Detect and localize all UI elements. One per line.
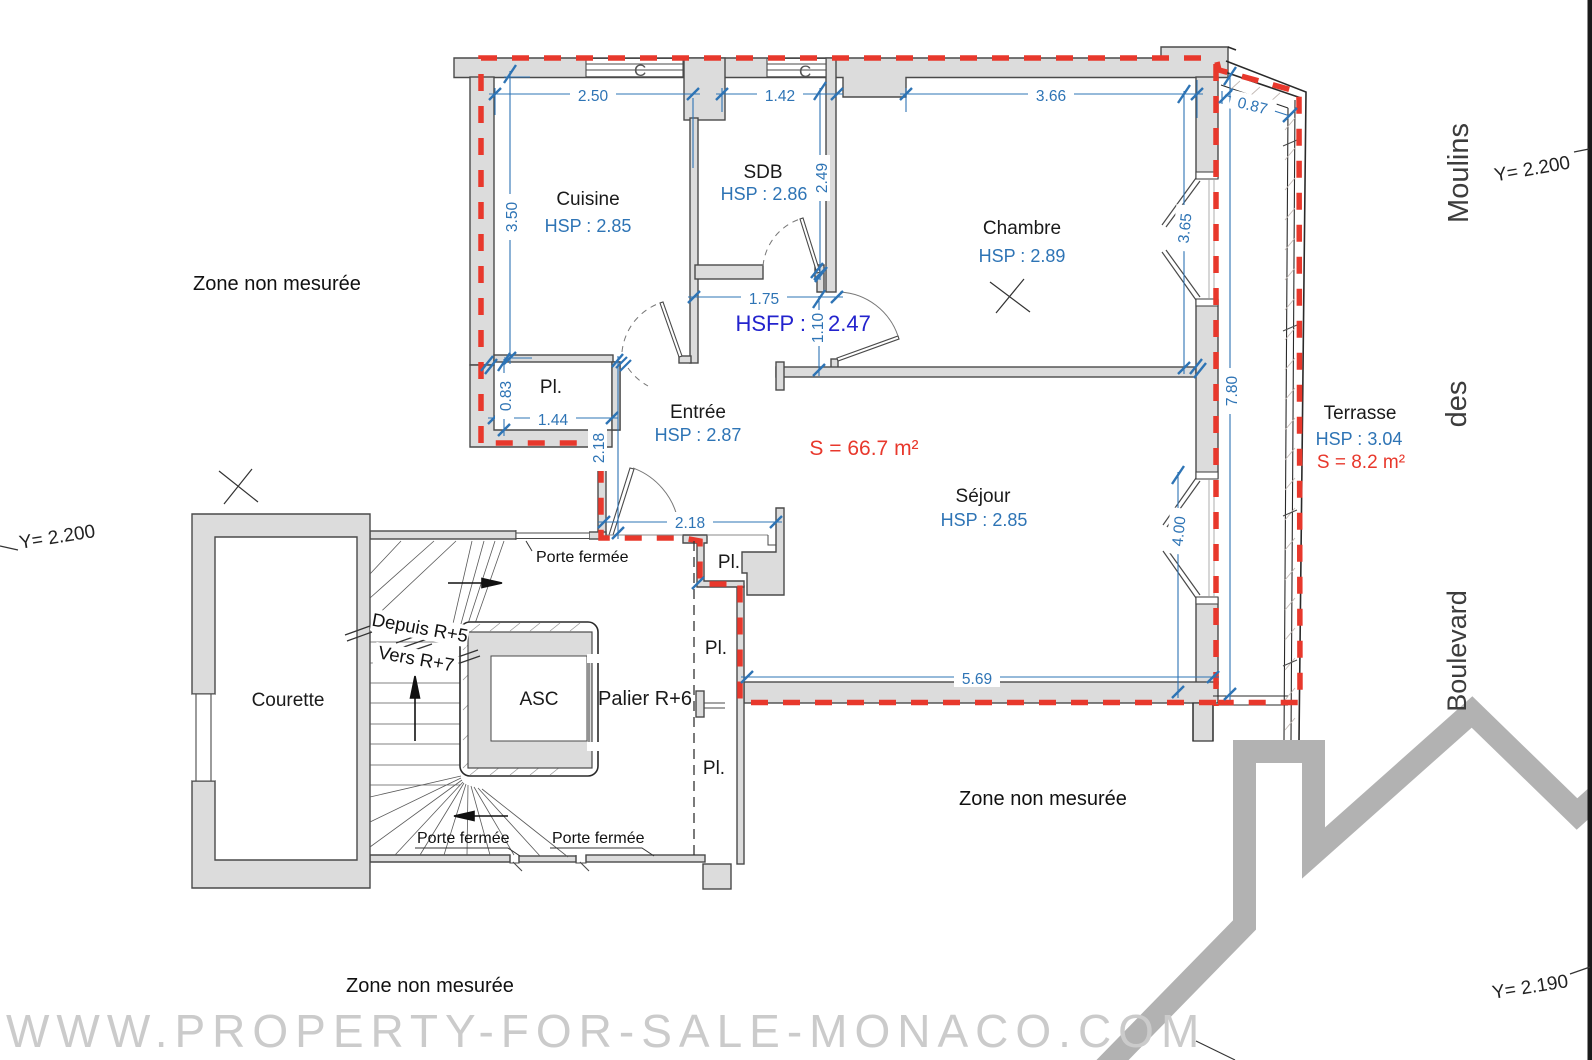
- svg-text:ASC: ASC: [519, 689, 558, 710]
- svg-text:Boulevard: Boulevard: [1442, 590, 1472, 712]
- svg-text:Porte fermée: Porte fermée: [552, 830, 645, 847]
- svg-text:2.50: 2.50: [578, 88, 609, 105]
- svg-text:WWW.PROPERTY-FOR-SALE-MONACO.C: WWW.PROPERTY-FOR-SALE-MONACO.COM: [6, 1005, 1206, 1057]
- svg-text:1.42: 1.42: [765, 88, 795, 105]
- svg-text:C: C: [799, 62, 811, 81]
- svg-text:5.69: 5.69: [962, 671, 992, 688]
- svg-text:C: C: [634, 61, 646, 80]
- svg-text:Pl.: Pl.: [540, 377, 562, 398]
- svg-text:Entrée: Entrée: [670, 402, 726, 423]
- svg-text:Zone non mesurée: Zone non mesurée: [959, 788, 1127, 810]
- svg-text:3.50: 3.50: [504, 202, 521, 233]
- svg-text:2.18: 2.18: [591, 433, 608, 463]
- svg-text:1.75: 1.75: [749, 291, 779, 308]
- svg-text:SDB: SDB: [743, 162, 782, 183]
- svg-text:Zone non mesurée: Zone non mesurée: [193, 273, 361, 295]
- svg-text:S = 66.7 m²: S = 66.7 m²: [809, 437, 918, 460]
- svg-text:1.10: 1.10: [810, 313, 827, 344]
- svg-text:S = 8.2 m²: S = 8.2 m²: [1317, 452, 1405, 473]
- svg-text:3.65: 3.65: [1175, 212, 1195, 244]
- svg-text:Terrasse: Terrasse: [1324, 403, 1397, 424]
- svg-text:0.83: 0.83: [498, 381, 515, 411]
- svg-text:7.80: 7.80: [1224, 376, 1241, 407]
- svg-text:Séjour: Séjour: [956, 486, 1012, 507]
- svg-text:2.47: 2.47: [828, 311, 871, 336]
- svg-text:Pl.: Pl.: [703, 758, 725, 779]
- svg-text:Pl.: Pl.: [718, 552, 740, 573]
- svg-text:Porte fermée: Porte fermée: [417, 830, 510, 847]
- svg-text:Palier R+6: Palier R+6: [598, 688, 692, 710]
- svg-text:Pl.: Pl.: [705, 638, 727, 659]
- svg-text:HSFP :: HSFP :: [735, 311, 806, 336]
- svg-text:Zone non mesurée: Zone non mesurée: [346, 975, 514, 997]
- svg-text:HSP : 2.89: HSP : 2.89: [979, 246, 1066, 266]
- svg-text:Chambre: Chambre: [983, 218, 1061, 239]
- svg-text:2.49: 2.49: [814, 163, 831, 193]
- svg-text:des: des: [1441, 381, 1473, 428]
- svg-text:Moulins: Moulins: [1443, 123, 1475, 223]
- svg-text:3.66: 3.66: [1036, 88, 1066, 105]
- svg-text:HSP : 2.85: HSP : 2.85: [941, 510, 1028, 530]
- svg-text:Cuisine: Cuisine: [556, 189, 619, 210]
- svg-text:1.44: 1.44: [538, 412, 569, 429]
- svg-text:HSP : 3.04: HSP : 3.04: [1316, 429, 1403, 449]
- svg-text:HSP : 2.86: HSP : 2.86: [721, 184, 808, 204]
- svg-text:Porte fermée: Porte fermée: [536, 549, 629, 566]
- svg-text:HSP : 2.85: HSP : 2.85: [545, 216, 632, 236]
- svg-text:Courette: Courette: [252, 690, 325, 711]
- svg-text:HSP : 2.87: HSP : 2.87: [655, 425, 742, 445]
- svg-text:4.00: 4.00: [1169, 515, 1189, 547]
- svg-text:2.18: 2.18: [675, 515, 705, 532]
